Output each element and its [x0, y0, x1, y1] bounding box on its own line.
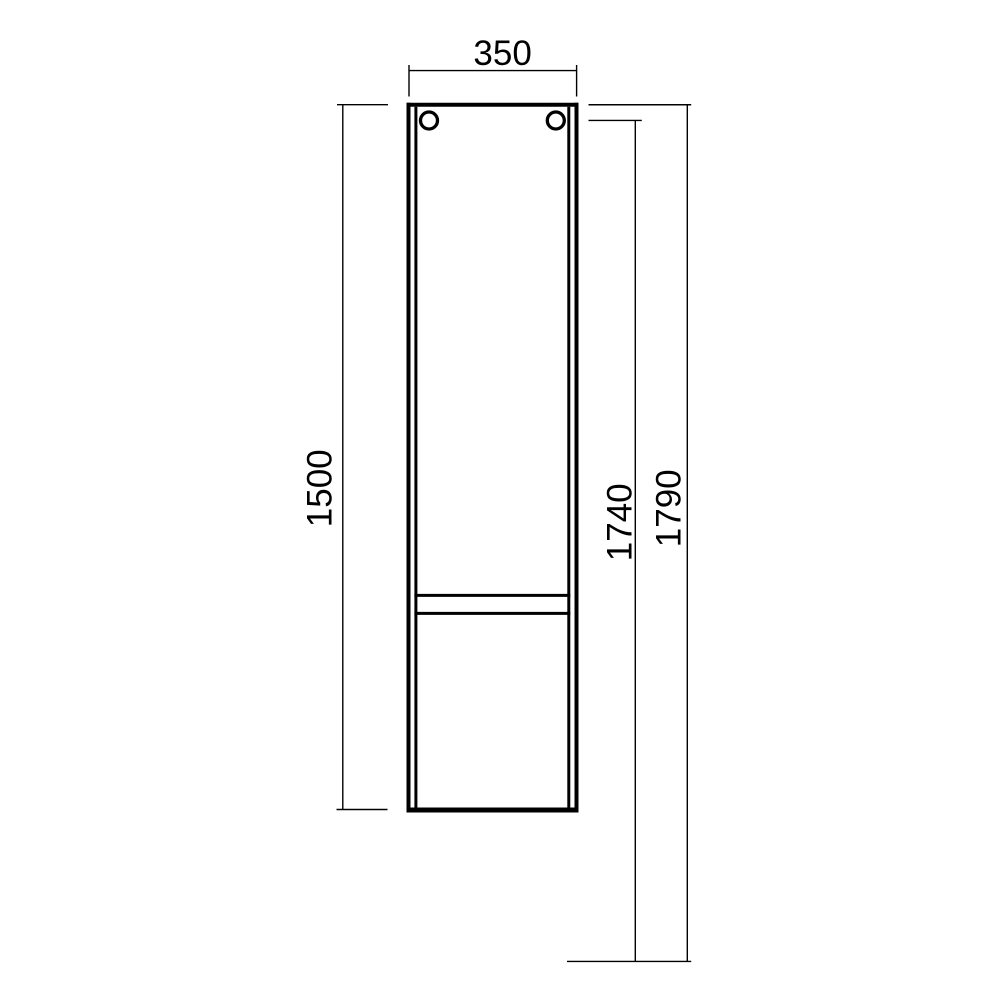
svg-text:1500: 1500 [301, 449, 340, 527]
svg-text:350: 350 [473, 34, 531, 73]
svg-text:1740: 1740 [600, 483, 639, 561]
svg-text:1790: 1790 [650, 469, 689, 547]
